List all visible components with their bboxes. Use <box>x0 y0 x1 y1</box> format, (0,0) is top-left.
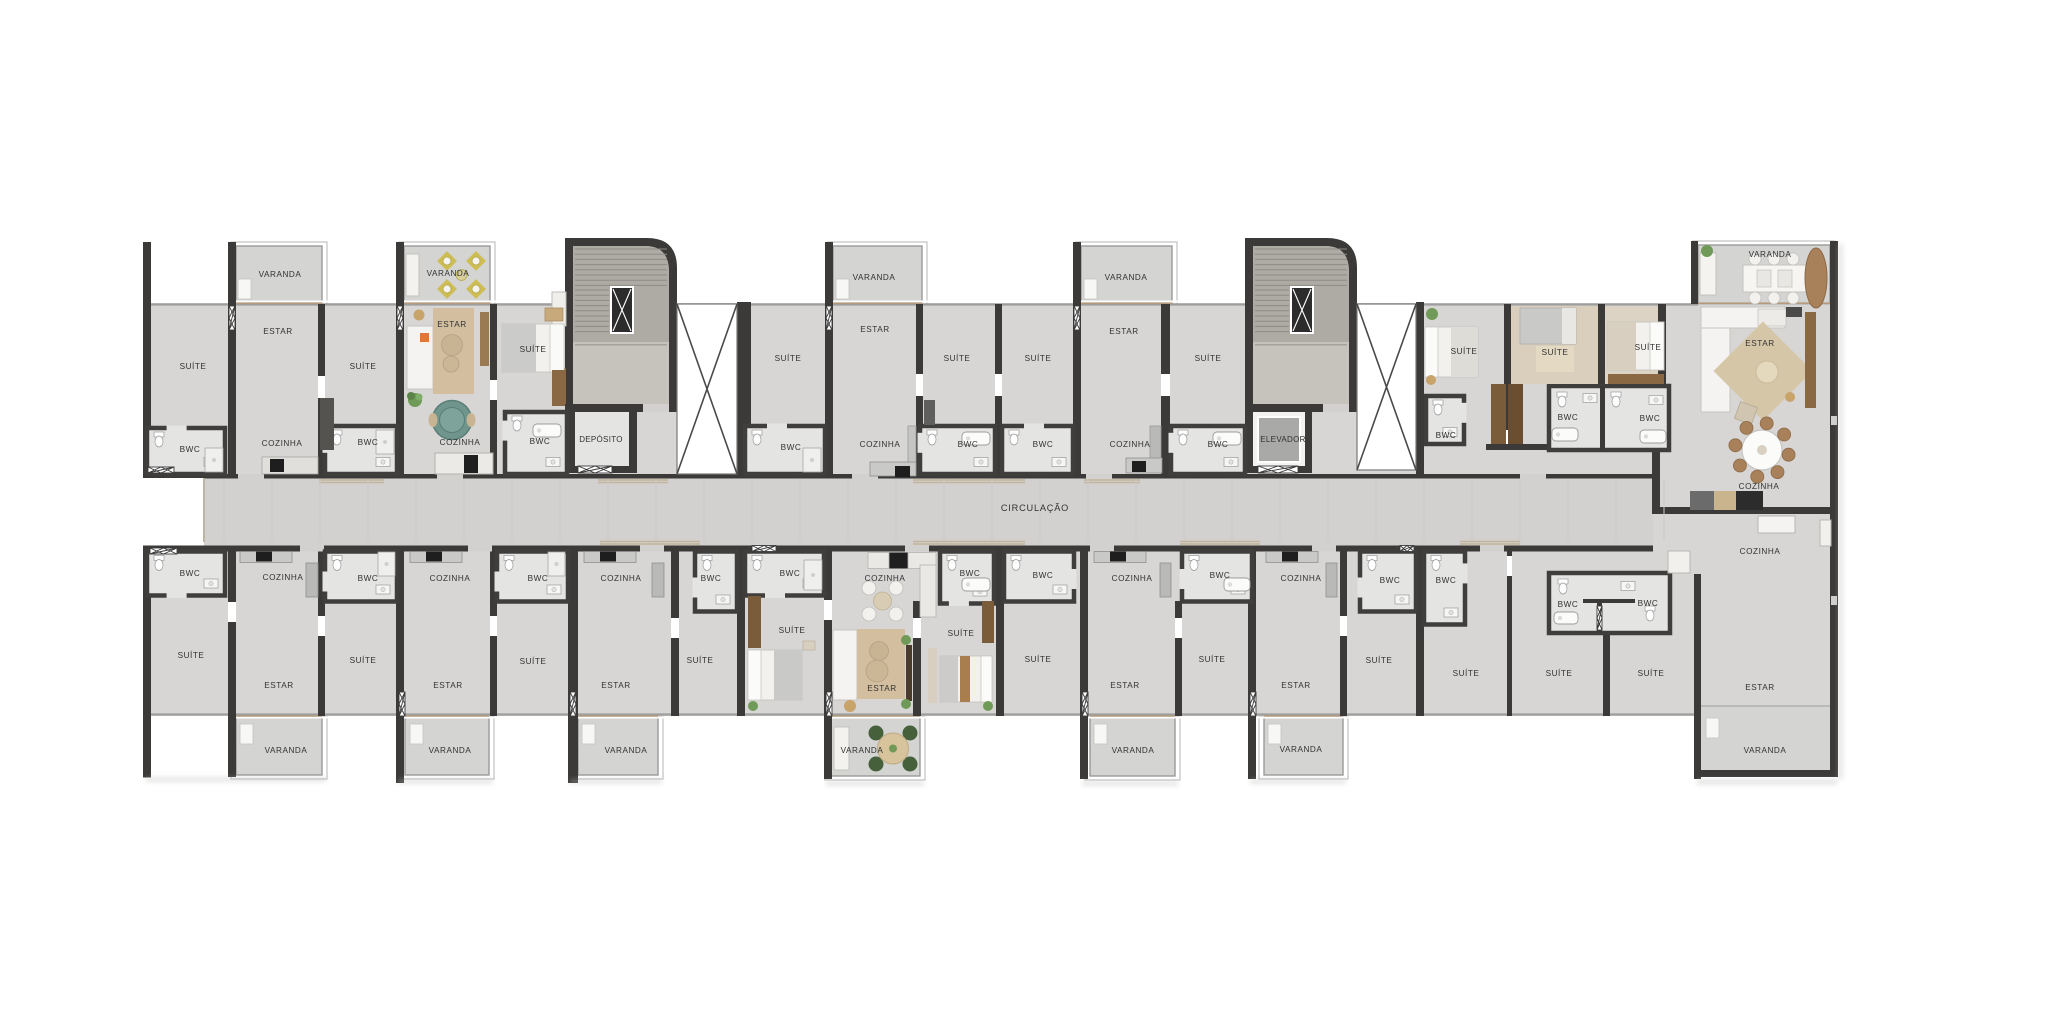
svg-text:SUÍTE: SUÍTE <box>1453 668 1480 678</box>
svg-text:ESTAR: ESTAR <box>867 684 896 693</box>
svg-text:VARANDA: VARANDA <box>841 746 884 755</box>
svg-text:BWC: BWC <box>528 574 549 583</box>
svg-text:COZINHA: COZINHA <box>860 440 901 449</box>
svg-text:ESTAR: ESTAR <box>433 681 462 690</box>
svg-text:COZINHA: COZINHA <box>1739 482 1780 491</box>
svg-text:BWC: BWC <box>1033 440 1054 449</box>
svg-text:ESTAR: ESTAR <box>601 681 630 690</box>
svg-text:VARANDA: VARANDA <box>265 746 308 755</box>
svg-text:ESTAR: ESTAR <box>1281 681 1310 690</box>
svg-text:ESTAR: ESTAR <box>1109 327 1138 336</box>
svg-text:ESTAR: ESTAR <box>1110 681 1139 690</box>
svg-text:SUÍTE: SUÍTE <box>520 344 547 354</box>
svg-text:COZINHA: COZINHA <box>430 574 471 583</box>
svg-text:BWC: BWC <box>780 569 801 578</box>
svg-text:SUÍTE: SUÍTE <box>1199 654 1226 664</box>
svg-text:VARANDA: VARANDA <box>427 269 470 278</box>
svg-text:BWC: BWC <box>180 569 201 578</box>
svg-text:SUÍTE: SUÍTE <box>350 361 377 371</box>
svg-text:BWC: BWC <box>701 574 722 583</box>
svg-text:BWC: BWC <box>1638 599 1659 608</box>
svg-text:SUÍTE: SUÍTE <box>1025 353 1052 363</box>
svg-text:ESTAR: ESTAR <box>860 325 889 334</box>
svg-text:ESTAR: ESTAR <box>263 327 292 336</box>
svg-text:SUÍTE: SUÍTE <box>775 353 802 363</box>
svg-text:SUÍTE: SUÍTE <box>350 655 377 665</box>
svg-text:ESTAR: ESTAR <box>264 681 293 690</box>
svg-text:COZINHA: COZINHA <box>865 574 906 583</box>
svg-text:SUÍTE: SUÍTE <box>1451 346 1478 356</box>
svg-text:SUÍTE: SUÍTE <box>1638 668 1665 678</box>
svg-text:SUÍTE: SUÍTE <box>948 628 975 638</box>
svg-text:BWC: BWC <box>958 440 979 449</box>
svg-text:ESTAR: ESTAR <box>437 320 466 329</box>
svg-text:COZINHA: COZINHA <box>1112 574 1153 583</box>
svg-text:ELEVADOR: ELEVADOR <box>1260 435 1305 444</box>
svg-text:VARANDA: VARANDA <box>1744 746 1787 755</box>
svg-text:COZINHA: COZINHA <box>440 438 481 447</box>
svg-text:BWC: BWC <box>1033 571 1054 580</box>
svg-text:SUÍTE: SUÍTE <box>180 361 207 371</box>
svg-text:SUÍTE: SUÍTE <box>1635 342 1662 352</box>
svg-text:BWC: BWC <box>1380 576 1401 585</box>
svg-text:BWC: BWC <box>1558 413 1579 422</box>
svg-text:BWC: BWC <box>1208 440 1229 449</box>
svg-text:VARANDA: VARANDA <box>259 270 302 279</box>
svg-text:COZINHA: COZINHA <box>1110 440 1151 449</box>
svg-text:SUÍTE: SUÍTE <box>1546 668 1573 678</box>
svg-text:SUÍTE: SUÍTE <box>1366 655 1393 665</box>
svg-text:VARANDA: VARANDA <box>1280 745 1323 754</box>
svg-text:SUÍTE: SUÍTE <box>687 655 714 665</box>
svg-text:SUÍTE: SUÍTE <box>779 625 806 635</box>
svg-text:VARANDA: VARANDA <box>429 746 472 755</box>
svg-text:COZINHA: COZINHA <box>1281 574 1322 583</box>
svg-text:BWC: BWC <box>960 569 981 578</box>
svg-text:SUÍTE: SUÍTE <box>520 656 547 666</box>
svg-text:DEPÓSITO: DEPÓSITO <box>579 435 623 444</box>
svg-text:BWC: BWC <box>358 438 379 447</box>
svg-text:BWC: BWC <box>180 445 201 454</box>
svg-text:COZINHA: COZINHA <box>1740 547 1781 556</box>
svg-text:SUÍTE: SUÍTE <box>1025 654 1052 664</box>
svg-text:BWC: BWC <box>1436 576 1457 585</box>
svg-text:BWC: BWC <box>781 443 802 452</box>
svg-text:SUÍTE: SUÍTE <box>178 650 205 660</box>
svg-text:BWC: BWC <box>1210 571 1231 580</box>
svg-text:CIRCULAÇÃO: CIRCULAÇÃO <box>1001 503 1069 513</box>
svg-text:VARANDA: VARANDA <box>1105 273 1148 282</box>
svg-text:COZINHA: COZINHA <box>263 573 304 582</box>
svg-text:BWC: BWC <box>1558 600 1579 609</box>
svg-text:BWC: BWC <box>1436 431 1457 440</box>
svg-text:BWC: BWC <box>530 437 551 446</box>
svg-text:ESTAR: ESTAR <box>1745 683 1774 692</box>
svg-text:COZINHA: COZINHA <box>601 574 642 583</box>
svg-text:SUÍTE: SUÍTE <box>944 353 971 363</box>
svg-text:COZINHA: COZINHA <box>262 439 303 448</box>
svg-text:SUÍTE: SUÍTE <box>1542 347 1569 357</box>
svg-text:VARANDA: VARANDA <box>1749 250 1792 259</box>
svg-text:VARANDA: VARANDA <box>1112 746 1155 755</box>
svg-text:VARANDA: VARANDA <box>853 273 896 282</box>
svg-text:SUÍTE: SUÍTE <box>1195 353 1222 363</box>
svg-text:ESTAR: ESTAR <box>1745 339 1774 348</box>
svg-text:BWC: BWC <box>1640 414 1661 423</box>
svg-text:BWC: BWC <box>358 574 379 583</box>
svg-text:VARANDA: VARANDA <box>605 746 648 755</box>
